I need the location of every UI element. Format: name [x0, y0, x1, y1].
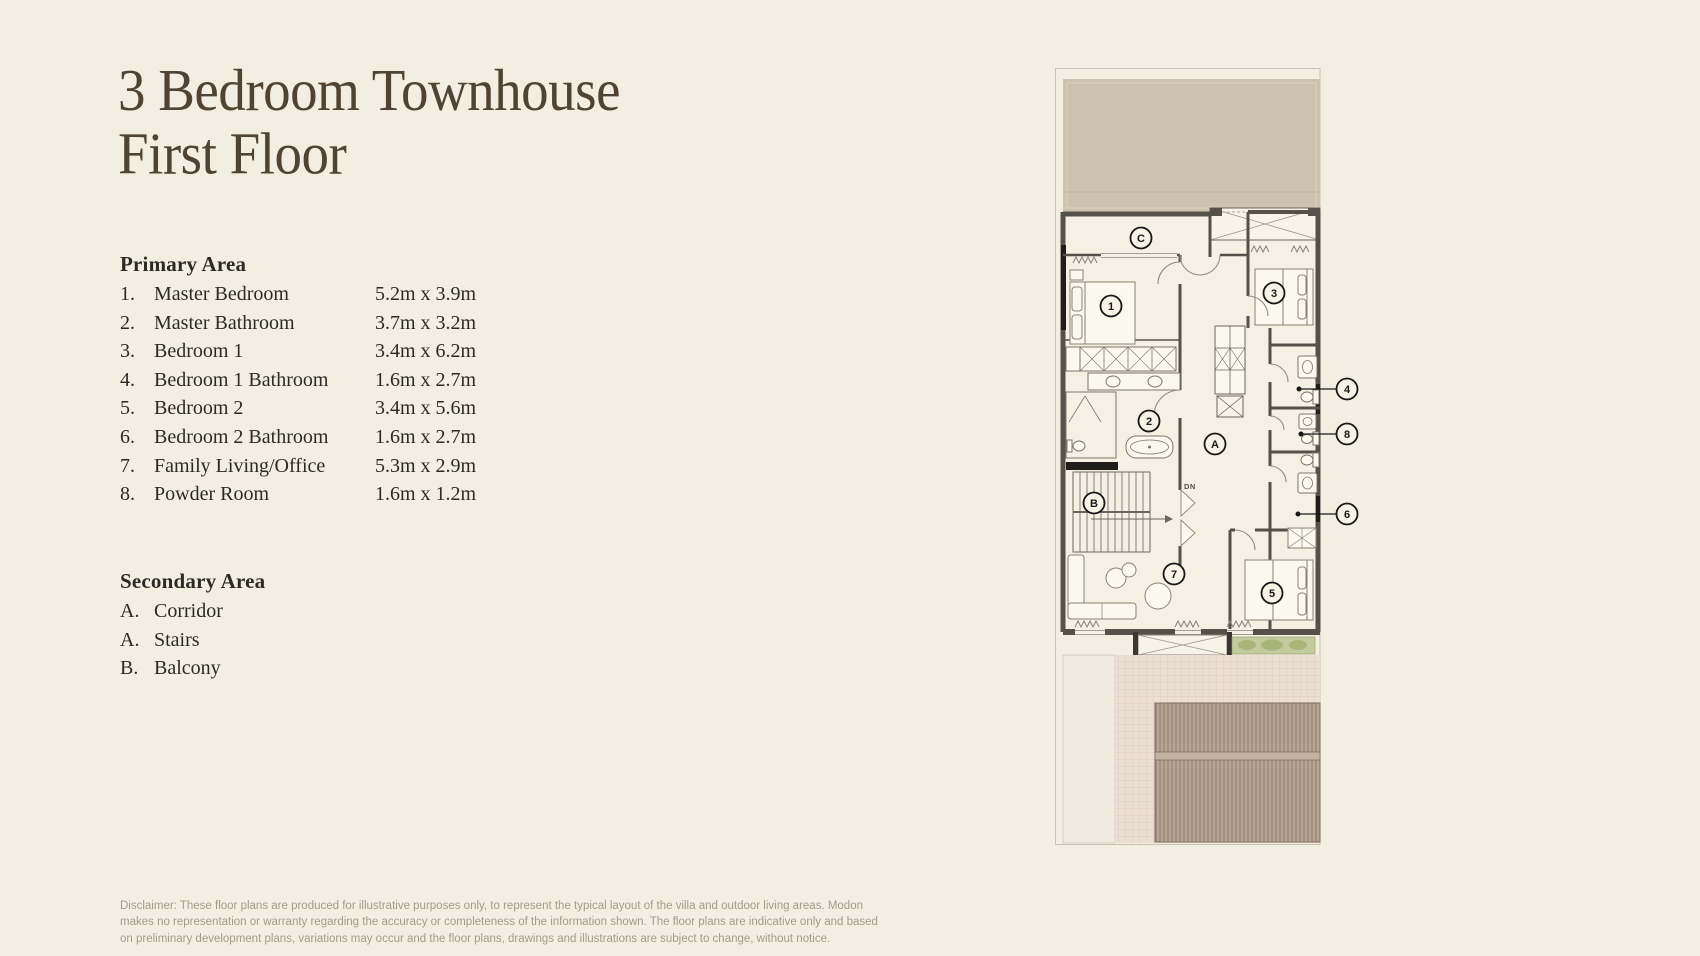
svg-text:C: C	[1137, 233, 1145, 245]
svg-text:5: 5	[1269, 588, 1275, 600]
page-title-line1: 3 Bedroom Townhouse	[118, 58, 620, 122]
legend-row: 1. Master Bedroom 5.2m x 3.9m	[120, 280, 540, 309]
callout-4: 4	[1337, 379, 1358, 400]
legend-item-dims: 3.4m x 5.6m	[375, 394, 476, 423]
page-title-line2: First Floor	[118, 122, 620, 186]
legend-primary-heading: Primary Area	[120, 251, 540, 277]
legend-item-dims: 5.2m x 3.9m	[375, 280, 476, 309]
legend-item-label: Corridor	[154, 597, 223, 626]
roof-terrace	[1063, 79, 1320, 212]
legend-row: A. Corridor	[120, 597, 540, 626]
callout-b: B	[1084, 493, 1105, 514]
legend-row: 4. Bedroom 1 Bathroom 1.6m x 2.7m	[120, 366, 540, 395]
callout-a: A	[1205, 434, 1226, 455]
legend-item-label: Master Bedroom	[154, 280, 289, 309]
legend-row: A. Stairs	[120, 626, 540, 655]
legend-item-num: 6.	[120, 423, 154, 452]
floor-plan: DN C 1 3 2 A B 7 5 4 8 6	[1055, 66, 1370, 847]
callout-5: 5	[1262, 583, 1283, 604]
legend-row: B. Balcony	[120, 654, 540, 683]
legend-item-num: 3.	[120, 337, 154, 366]
legend-item-num: B.	[120, 654, 154, 683]
closet-shaft-column	[1215, 326, 1245, 417]
page-title: 3 Bedroom Townhouse First Floor	[118, 58, 620, 185]
entry-porch	[1133, 632, 1232, 655]
legend-item-dims: 1.6m x 2.7m	[375, 366, 476, 395]
legend-item-label: Balcony	[154, 654, 221, 683]
legend-item-num: 7.	[120, 452, 154, 481]
legend-row: 5. Bedroom 2 3.4m x 5.6m	[120, 394, 540, 423]
legend-item-num: 8.	[120, 480, 154, 509]
disclaimer-line1: Disclaimer: These floor plans are produc…	[120, 898, 1000, 914]
legend-row: 6. Bedroom 2 Bathroom 1.6m x 2.7m	[120, 423, 540, 452]
legend-item-label: Powder Room	[154, 480, 269, 509]
callout-c: C	[1131, 228, 1152, 249]
legend-item-num: 5.	[120, 394, 154, 423]
legend-item-num: A.	[120, 597, 154, 626]
legend-row: 2. Master Bathroom 3.7m x 3.2m	[120, 309, 540, 338]
planter	[1232, 637, 1315, 654]
legend-secondary-area: Secondary Area A. Corridor A. Stairs B. …	[120, 568, 540, 683]
stairs-dn-label: DN	[1184, 482, 1196, 491]
side-strip	[1063, 655, 1115, 843]
legend-item-dims: 3.4m x 6.2m	[375, 337, 476, 366]
svg-text:6: 6	[1344, 509, 1350, 521]
legend-secondary-heading: Secondary Area	[120, 568, 540, 594]
legend-item-label: Bedroom 1 Bathroom	[154, 366, 328, 395]
svg-text:A: A	[1211, 439, 1219, 451]
legend-item-num: 1.	[120, 280, 154, 309]
legend-item-label: Bedroom 1	[154, 337, 243, 366]
legend-item-label: Master Bathroom	[154, 309, 295, 338]
legend-item-label: Bedroom 2	[154, 394, 243, 423]
legend-row: 8. Powder Room 1.6m x 1.2m	[120, 480, 540, 509]
deck-pergola	[1155, 703, 1320, 842]
svg-text:3: 3	[1271, 288, 1277, 300]
legend-item-label: Family Living/Office	[154, 452, 325, 481]
svg-text:2: 2	[1146, 416, 1152, 428]
bedroom2-bathroom-fixtures	[1298, 453, 1319, 493]
svg-text:4: 4	[1344, 384, 1351, 396]
callout-3: 3	[1264, 283, 1285, 304]
callout-6: 6	[1337, 504, 1358, 525]
legend-row: 7. Family Living/Office 5.3m x 2.9m	[120, 452, 540, 481]
legend-item-dims: 3.7m x 3.2m	[375, 309, 476, 338]
callout-7: 7	[1164, 564, 1185, 585]
legend-item-num: A.	[120, 626, 154, 655]
legend-item-dims: 1.6m x 1.2m	[375, 480, 476, 509]
callout-1: 1	[1101, 296, 1122, 317]
legend-item-label: Stairs	[154, 626, 200, 655]
legend-item-num: 4.	[120, 366, 154, 395]
disclaimer-line3: on preliminary development plans, variat…	[120, 931, 1000, 947]
legend-item-num: 2.	[120, 309, 154, 338]
svg-text:B: B	[1090, 498, 1098, 510]
callout-2: 2	[1139, 411, 1160, 432]
callout-8: 8	[1337, 424, 1358, 445]
disclaimer: Disclaimer: These floor plans are produc…	[120, 898, 1000, 947]
disclaimer-line2: makes no representation or warranty rega…	[120, 914, 1000, 930]
legend-primary-area: Primary Area 1. Master Bedroom 5.2m x 3.…	[120, 251, 540, 509]
svg-text:7: 7	[1171, 569, 1177, 581]
legend-item-dims: 5.3m x 2.9m	[375, 452, 476, 481]
svg-text:8: 8	[1344, 429, 1350, 441]
svg-text:1: 1	[1108, 301, 1114, 313]
legend-row: 3. Bedroom 1 3.4m x 6.2m	[120, 337, 540, 366]
legend-item-dims: 1.6m x 2.7m	[375, 423, 476, 452]
legend-item-label: Bedroom 2 Bathroom	[154, 423, 328, 452]
